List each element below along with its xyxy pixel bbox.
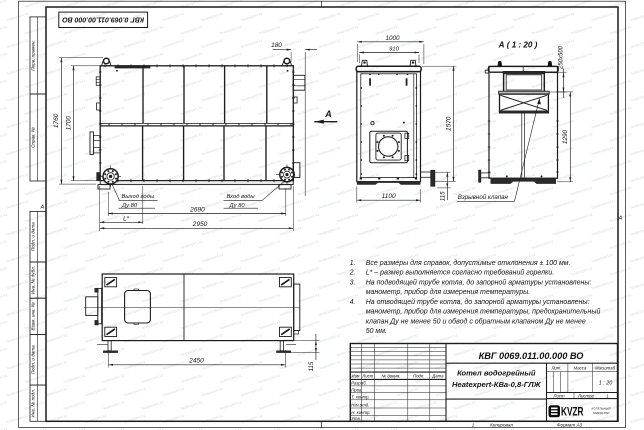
svg-text:1700: 1700	[65, 116, 72, 131]
svg-text:Подп. и дата: Подп. и дата	[30, 345, 35, 374]
svg-text:Котел водогрейный: Котел водогрейный	[457, 368, 536, 377]
svg-text:Лит.: Лит.	[550, 365, 561, 370]
svg-text:Все размеры для справок, допус: Все размеры для справок, допустимые откл…	[366, 259, 571, 267]
svg-text:115: 115	[309, 361, 315, 371]
svg-text:А: А	[324, 109, 332, 119]
svg-text:манометр, прибор для измерения: манометр, прибор для измерения температу…	[366, 308, 601, 316]
svg-text:Т. контр.: Т. контр.	[351, 395, 370, 400]
svg-text:КВГ 0.069.011.00.000 ВО: КВГ 0.069.011.00.000 ВО	[62, 15, 144, 22]
svg-text:Справ. №: Справ. №	[30, 127, 35, 148]
svg-text:2950: 2950	[192, 221, 208, 228]
svg-text:Выход воды: Выход воды	[122, 194, 155, 200]
svg-text:А ( 1 : 20 ): А ( 1 : 20 )	[498, 40, 538, 49]
svg-text:1.: 1.	[350, 260, 356, 267]
svg-text:Ду 80: Ду 80	[121, 203, 138, 209]
svg-text:1570: 1570	[445, 116, 452, 131]
svg-text:Взрывной клапан: Взрывной клапан	[458, 194, 509, 201]
svg-text:№ докум.: № докум.	[382, 374, 401, 379]
svg-text:клапан Ду не менее 50 и обвод: клапан Ду не менее 50 и обвод с обратным…	[366, 317, 586, 325]
svg-text:Пров.: Пров.	[351, 387, 362, 392]
svg-text:КОТЕЛЬНЫЙ: КОТЕЛЬНЫЙ	[592, 407, 612, 411]
svg-text:Инв. № дубл.: Инв. № дубл.	[30, 266, 35, 294]
svg-text:910: 910	[389, 46, 399, 52]
svg-text:Вход воды: Вход воды	[227, 194, 256, 200]
svg-text:L* – размер выполняется соглас: L* – размер выполняется согласно требова…	[366, 269, 555, 277]
svg-text:А: А	[618, 216, 623, 222]
svg-text:Лист: Лист	[361, 374, 373, 379]
svg-text:Разраб.: Разраб.	[351, 381, 367, 386]
svg-text:ЗАВОД РЗР: ЗАВОД РЗР	[593, 411, 610, 415]
svg-text:Инв. № подл.: Инв. № подл.	[30, 389, 35, 418]
svg-text:1 : 20: 1 : 20	[599, 381, 613, 387]
svg-text:Н. контр.: Н. контр.	[351, 410, 370, 415]
svg-text:4.: 4.	[350, 299, 356, 306]
svg-text:2690: 2690	[189, 206, 205, 213]
svg-text:Формат А3: Формат А3	[557, 422, 583, 427]
svg-text:2450: 2450	[188, 358, 204, 365]
svg-text:Ду 80: Ду 80	[229, 203, 246, 209]
svg-text:Heatexpert-КВа-0,8-ГЛЖ: Heatexpert-КВа-0,8-ГЛЖ	[452, 380, 542, 389]
svg-text:1000: 1000	[385, 35, 400, 42]
svg-text:Листов: Листов	[577, 393, 594, 398]
svg-text:3.: 3.	[350, 279, 356, 286]
svg-text:1760: 1760	[53, 113, 60, 128]
svg-text:А: А	[40, 205, 45, 211]
svg-text:Лист: Лист	[553, 393, 565, 398]
svg-text:KVZR: KVZR	[561, 405, 584, 419]
svg-text:2.: 2.	[349, 270, 356, 277]
svg-text:180: 180	[271, 42, 282, 49]
svg-text:Масса: Масса	[574, 365, 587, 370]
svg-text:манометр, прибор для измерения: манометр, прибор для измерения температу…	[366, 288, 531, 296]
svg-text:1290: 1290	[562, 129, 569, 144]
svg-text:На отводящей трубе котла, до з: На отводящей трубе котла, до запорной ар…	[366, 298, 590, 306]
svg-text:Взам. инв. №: Взам. инв. №	[30, 302, 35, 330]
svg-text:1: 1	[472, 422, 475, 427]
svg-text:L*: L*	[123, 215, 129, 222]
svg-text:КВГ 0069.011.00.000 ВО: КВГ 0069.011.00.000 ВО	[479, 351, 584, 361]
svg-text:На подводящей трубе котла, до: На подводящей трубе котла, до запорной а…	[366, 278, 592, 286]
svg-text:Дата: Дата	[431, 374, 444, 379]
svg-text:Подп. и дата: Подп. и дата	[30, 222, 35, 251]
svg-text:115: 115	[441, 191, 447, 201]
svg-text:Масштаб: Масштаб	[595, 365, 616, 370]
svg-text:Изм: Изм	[352, 374, 360, 379]
svg-text:50 мм.: 50 мм.	[366, 328, 387, 335]
svg-text:Нач.отд.: Нач.отд.	[351, 403, 369, 408]
svg-text:1100: 1100	[382, 193, 396, 200]
svg-text:250х500: 250х500	[558, 45, 564, 70]
svg-text:Утв.: Утв.	[351, 416, 361, 421]
svg-text:Перв. примен.: Перв. примен.	[30, 40, 35, 71]
svg-text:Подп.: Подп.	[413, 374, 424, 379]
svg-text:Копировал: Копировал	[490, 422, 513, 427]
